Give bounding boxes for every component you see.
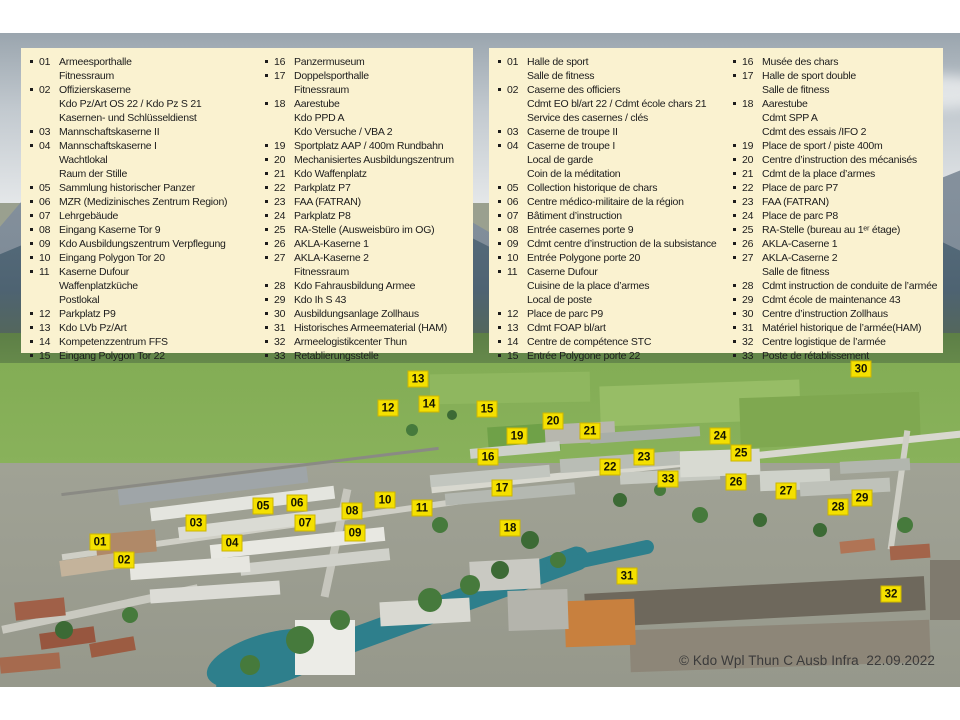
legend-item-text: AKLA-Kaserne 1 bbox=[294, 237, 369, 251]
legend-item: 14Centre de compétence STC bbox=[498, 335, 733, 349]
legend-item: 26AKLA-Caserne 1 bbox=[733, 237, 937, 251]
bullet-icon bbox=[498, 209, 507, 223]
legend-item-number: 27 bbox=[274, 251, 294, 279]
legend-item-text: Halle de sportSalle de fitness bbox=[527, 55, 594, 83]
bullet-icon bbox=[30, 321, 39, 335]
bullet-icon bbox=[498, 237, 507, 251]
map-marker-22[interactable]: 22 bbox=[600, 459, 621, 476]
map-marker-08[interactable]: 08 bbox=[342, 503, 363, 520]
map-marker-07[interactable]: 07 bbox=[295, 515, 316, 532]
legend-item-text: Centre logistique de l’armée bbox=[762, 335, 886, 349]
bullet-icon bbox=[265, 139, 274, 153]
tree-icon bbox=[447, 410, 457, 420]
legend-item: 17DoppelsporthalleFitnessraum bbox=[265, 69, 454, 97]
legend-item-number: 33 bbox=[274, 349, 294, 363]
bullet-icon bbox=[30, 223, 39, 237]
bullet-icon bbox=[265, 167, 274, 181]
map-marker-27[interactable]: 27 bbox=[776, 483, 797, 500]
legend-item-number: 09 bbox=[39, 237, 59, 251]
legend-item: 09Cdmt centre d’instruction de la subsis… bbox=[498, 237, 733, 251]
map-marker-29[interactable]: 29 bbox=[852, 490, 873, 507]
bullet-icon bbox=[733, 209, 742, 223]
legend-item-number: 24 bbox=[274, 209, 294, 223]
legend-item-text: Kaserne DufourWaffenplatzküchePostlokal bbox=[59, 265, 138, 307]
bullet-icon bbox=[733, 335, 742, 349]
map-marker-19[interactable]: 19 bbox=[507, 428, 528, 445]
bullet-icon bbox=[733, 181, 742, 195]
legend-item-number: 29 bbox=[274, 293, 294, 307]
legend-item: 12Parkplatz P9 bbox=[30, 307, 265, 321]
legend-item-text: RA-Stelle (bureau au 1ᵉʳ étage) bbox=[762, 223, 900, 237]
legend-item-number: 31 bbox=[742, 321, 762, 335]
legend-item: 27AKLA-Caserne 2Salle de fitness bbox=[733, 251, 937, 279]
legend-item: 29Cdmt école de maintenance 43 bbox=[733, 293, 937, 307]
tree-icon bbox=[330, 610, 350, 630]
tree-icon bbox=[406, 424, 418, 436]
legend-item-text: AarestubeKdo PPD AKdo Versuche / VBA 2 bbox=[294, 97, 392, 139]
legend-item: 22Parkplatz P7 bbox=[265, 181, 454, 195]
bullet-icon bbox=[30, 265, 39, 307]
legend-item: 06MZR (Medizinisches Zentrum Region) bbox=[30, 195, 265, 209]
legend-item: 02Caserne des officiersCdmt EO bl/art 22… bbox=[498, 83, 733, 125]
legend-item: 24Place de parc P8 bbox=[733, 209, 937, 223]
bullet-icon bbox=[498, 223, 507, 237]
legend-item-number: 22 bbox=[274, 181, 294, 195]
legend-item-number: 19 bbox=[742, 139, 762, 153]
legend-item: 32Armeelogistikcenter Thun bbox=[265, 335, 454, 349]
map-marker-06[interactable]: 06 bbox=[287, 495, 308, 512]
map-marker-11[interactable]: 11 bbox=[412, 500, 433, 517]
bullet-icon bbox=[30, 307, 39, 321]
tree-icon bbox=[432, 517, 448, 533]
legend-item-text: AKLA-Caserne 2Salle de fitness bbox=[762, 251, 837, 279]
map-marker-26[interactable]: 26 bbox=[726, 474, 747, 491]
legend-item-number: 03 bbox=[507, 125, 527, 139]
legend-item-number: 26 bbox=[742, 237, 762, 251]
legend-item-text: Place de sport / piste 400m bbox=[762, 139, 883, 153]
bullet-icon bbox=[498, 125, 507, 139]
copyright-text: © Kdo Wpl Thun C Ausb Infra 22.09.2022 bbox=[679, 653, 935, 668]
legend-item-text: Musée des chars bbox=[762, 55, 838, 69]
bullet-icon bbox=[265, 335, 274, 349]
legend-item-text: ArmeesporthalleFitnessraum bbox=[59, 55, 132, 83]
bullet-icon bbox=[265, 181, 274, 195]
legend-item: 31Matériel historique de l’armée(HAM) bbox=[733, 321, 937, 335]
bullet-icon bbox=[265, 97, 274, 139]
legend-item-number: 01 bbox=[507, 55, 527, 83]
tree-icon bbox=[692, 507, 708, 523]
bullet-icon bbox=[498, 195, 507, 209]
legend-item: 30Ausbildungsanlage Zollhaus bbox=[265, 307, 454, 321]
legend-item-number: 13 bbox=[39, 321, 59, 335]
building bbox=[890, 544, 931, 561]
legend-item-text: OffizierskaserneKdo Pz/Art OS 22 / Kdo P… bbox=[59, 83, 202, 125]
legend-item-number: 20 bbox=[274, 153, 294, 167]
bullet-icon bbox=[265, 307, 274, 321]
legend-item: 11Caserne DufourCuisine de la place d’ar… bbox=[498, 265, 733, 307]
bullet-icon bbox=[498, 349, 507, 363]
legend-item: 20Mechanisiertes Ausbildungszentrum bbox=[265, 153, 454, 167]
bullet-icon bbox=[733, 69, 742, 97]
legend-item-text: Kdo Waffenplatz bbox=[294, 167, 367, 181]
tree-icon bbox=[286, 626, 314, 654]
bullet-icon bbox=[733, 223, 742, 237]
legend-item: 21Kdo Waffenplatz bbox=[265, 167, 454, 181]
site-plan-screenshot: 01ArmeesporthalleFitnessraum02Offiziersk… bbox=[0, 0, 960, 720]
bullet-icon bbox=[733, 293, 742, 307]
map-marker-05[interactable]: 05 bbox=[253, 498, 274, 515]
tree-icon bbox=[753, 513, 767, 527]
bullet-icon bbox=[733, 237, 742, 251]
legend-item-text: Parkplatz P9 bbox=[59, 307, 116, 321]
tree-icon bbox=[240, 655, 260, 675]
tree-icon bbox=[521, 531, 539, 549]
legend-item-number: 17 bbox=[742, 69, 762, 97]
legend-item-number: 10 bbox=[39, 251, 59, 265]
legend-item-text: Bâtiment d’instruction bbox=[527, 209, 622, 223]
legend-item-text: Kompetenzzentrum FFS bbox=[59, 335, 168, 349]
legend-item-number: 10 bbox=[507, 251, 527, 265]
building bbox=[507, 589, 568, 631]
bullet-icon bbox=[733, 97, 742, 139]
map-marker-15[interactable]: 15 bbox=[477, 401, 498, 418]
tree-icon bbox=[418, 588, 442, 612]
building bbox=[564, 599, 636, 647]
legend-item: 01ArmeesporthalleFitnessraum bbox=[30, 55, 265, 83]
legend-item-number: 12 bbox=[507, 307, 527, 321]
legend-item-text: Caserne de troupe II bbox=[527, 125, 618, 139]
bullet-icon bbox=[733, 167, 742, 181]
map-marker-30[interactable]: 30 bbox=[851, 361, 872, 378]
legend-item: 31Historisches Armeematerial (HAM) bbox=[265, 321, 454, 335]
bullet-icon bbox=[265, 195, 274, 209]
legend-item-text: Sportplatz AAP / 400m Rundbahn bbox=[294, 139, 443, 153]
legend-item-number: 21 bbox=[742, 167, 762, 181]
legend-item: 03Caserne de troupe II bbox=[498, 125, 733, 139]
legend-item: 05Sammlung historischer Panzer bbox=[30, 181, 265, 195]
legend-item-text: RA-Stelle (Ausweisbüro im OG) bbox=[294, 223, 434, 237]
legend-item-text: MZR (Medizinisches Zentrum Region) bbox=[59, 195, 227, 209]
bullet-icon bbox=[265, 237, 274, 251]
legend-item: 18AarestubeKdo PPD AKdo Versuche / VBA 2 bbox=[265, 97, 454, 139]
legend-item: 11Kaserne DufourWaffenplatzküchePostloka… bbox=[30, 265, 265, 307]
legend-item-number: 20 bbox=[742, 153, 762, 167]
legend-item: 13Cdmt FOAP bl/art bbox=[498, 321, 733, 335]
map-marker-28[interactable]: 28 bbox=[828, 499, 849, 516]
map-marker-10[interactable]: 10 bbox=[375, 492, 396, 509]
legend-item: 23FAA (FATRAN) bbox=[265, 195, 454, 209]
legend-item-text: Parkplatz P7 bbox=[294, 181, 351, 195]
legend-item: 10Eingang Polygon Tor 20 bbox=[30, 251, 265, 265]
legend-item: 21Cdmt de la place d’armes bbox=[733, 167, 937, 181]
legend-item-number: 02 bbox=[39, 83, 59, 125]
legend-item-text: Sammlung historischer Panzer bbox=[59, 181, 195, 195]
legend-item: 28Cdmt instruction de conduite de l’armé… bbox=[733, 279, 937, 293]
legend-item-number: 32 bbox=[742, 335, 762, 349]
legend-item-number: 26 bbox=[274, 237, 294, 251]
map-marker-23[interactable]: 23 bbox=[634, 449, 655, 466]
bullet-icon bbox=[265, 55, 274, 69]
legend-french: 01Halle de sportSalle de fitness02Casern… bbox=[489, 48, 943, 353]
bullet-icon bbox=[30, 125, 39, 139]
legend-item: 33Poste de rétablissement bbox=[733, 349, 937, 363]
legend-item-text: Eingang Kaserne Tor 9 bbox=[59, 223, 160, 237]
legend-item-text: Cdmt de la place d’armes bbox=[762, 167, 875, 181]
legend-item: 05Collection historique de chars bbox=[498, 181, 733, 195]
legend-item: 19Sportplatz AAP / 400m Rundbahn bbox=[265, 139, 454, 153]
legend-item: 08Entrée casernes porte 9 bbox=[498, 223, 733, 237]
tree-icon bbox=[897, 517, 913, 533]
legend-item-text: Place de parc P9 bbox=[527, 307, 603, 321]
legend-item-text: FAA (FATRAN) bbox=[762, 195, 829, 209]
map-marker-17[interactable]: 17 bbox=[492, 480, 513, 497]
legend-item-number: 08 bbox=[507, 223, 527, 237]
bullet-icon bbox=[265, 293, 274, 307]
legend-item-text: FAA (FATRAN) bbox=[294, 195, 361, 209]
legend-item: 22Place de parc P7 bbox=[733, 181, 937, 195]
bullet-icon bbox=[733, 153, 742, 167]
legend-item-text: Historisches Armeematerial (HAM) bbox=[294, 321, 447, 335]
legend-item: 19Place de sport / piste 400m bbox=[733, 139, 937, 153]
legend-item-number: 14 bbox=[507, 335, 527, 349]
legend-item-number: 24 bbox=[742, 209, 762, 223]
legend-item-number: 15 bbox=[507, 349, 527, 363]
map-marker-04[interactable]: 04 bbox=[222, 535, 243, 552]
bullet-icon bbox=[498, 83, 507, 125]
legend-item: 14Kompetenzzentrum FFS bbox=[30, 335, 265, 349]
tree-icon bbox=[491, 561, 509, 579]
bullet-icon bbox=[498, 265, 507, 307]
legend-item-text: Cdmt instruction de conduite de l’armée bbox=[762, 279, 937, 293]
legend-item: 24Parkplatz P8 bbox=[265, 209, 454, 223]
map-marker-33[interactable]: 33 bbox=[658, 471, 679, 488]
legend-item: 15Eingang Polygon Tor 22 bbox=[30, 349, 265, 363]
tree-icon bbox=[813, 523, 827, 537]
map-marker-01[interactable]: 01 bbox=[90, 534, 111, 551]
legend-item-number: 28 bbox=[274, 279, 294, 293]
map-marker-21[interactable]: 21 bbox=[580, 423, 601, 440]
legend-item-text: Eingang Polygon Tor 22 bbox=[59, 349, 165, 363]
legend-item-text: Centre médico-militaire de la région bbox=[527, 195, 684, 209]
legend-item: 16Musée des chars bbox=[733, 55, 937, 69]
legend-item-number: 33 bbox=[742, 349, 762, 363]
map-marker-13[interactable]: 13 bbox=[408, 371, 429, 388]
legend-item: 25RA-Stelle (Ausweisbüro im OG) bbox=[265, 223, 454, 237]
legend-item-number: 23 bbox=[274, 195, 294, 209]
legend-item-text: Ausbildungsanlage Zollhaus bbox=[294, 307, 419, 321]
legend-item-text: Cdmt centre d’instruction de la subsista… bbox=[527, 237, 716, 251]
bullet-icon bbox=[733, 195, 742, 209]
legend-item: 32Centre logistique de l’armée bbox=[733, 335, 937, 349]
legend-item: 20Centre d’instruction des mécanisés bbox=[733, 153, 937, 167]
legend-item-text: Entrée Polygone porte 22 bbox=[527, 349, 640, 363]
legend-item: 07Bâtiment d’instruction bbox=[498, 209, 733, 223]
legend-item-number: 15 bbox=[39, 349, 59, 363]
tree-icon bbox=[613, 493, 627, 507]
legend-item: 10Entrée Polygone porte 20 bbox=[498, 251, 733, 265]
legend-item-number: 31 bbox=[274, 321, 294, 335]
legend-item-text: Mannschaftskaserne II bbox=[59, 125, 159, 139]
legend-item-number: 23 bbox=[742, 195, 762, 209]
legend-item: 04Mannschaftskaserne IWachtlokalRaum der… bbox=[30, 139, 265, 181]
legend-item-text: Centre d’instruction Zollhaus bbox=[762, 307, 888, 321]
legend-item-text: Cdmt école de maintenance 43 bbox=[762, 293, 900, 307]
bullet-icon bbox=[498, 251, 507, 265]
legend-item-number: 06 bbox=[39, 195, 59, 209]
legend-item: 16Panzermuseum bbox=[265, 55, 454, 69]
legend-item: 18AarestubeCdmt SPP ACdmt des essais /IF… bbox=[733, 97, 937, 139]
legend-item-text: Kdo Ausbildungszentrum Verpflegung bbox=[59, 237, 226, 251]
legend-item-text: Lehrgebäude bbox=[59, 209, 118, 223]
legend-item: 06Centre médico-militaire de la région bbox=[498, 195, 733, 209]
legend-item-text: Centre d’instruction des mécanisés bbox=[762, 153, 917, 167]
legend-item-text: Parkplatz P8 bbox=[294, 209, 351, 223]
legend-item-number: 18 bbox=[274, 97, 294, 139]
legend-item: 13Kdo LVb Pz/Art bbox=[30, 321, 265, 335]
legend-item-number: 18 bbox=[742, 97, 762, 139]
legend-french-column-1: 01Halle de sportSalle de fitness02Casern… bbox=[498, 55, 733, 353]
legend-item-text: AKLA-Caserne 1 bbox=[762, 237, 837, 251]
legend-item-text: Place de parc P7 bbox=[762, 181, 838, 195]
legend-item-number: 30 bbox=[274, 307, 294, 321]
legend-item-number: 32 bbox=[274, 335, 294, 349]
legend-item-number: 27 bbox=[742, 251, 762, 279]
legend-item-text: AarestubeCdmt SPP ACdmt des essais /IFO … bbox=[762, 97, 866, 139]
map-marker-09[interactable]: 09 bbox=[345, 525, 366, 542]
map-marker-03[interactable]: 03 bbox=[186, 515, 207, 532]
map-marker-16[interactable]: 16 bbox=[478, 449, 499, 466]
map-marker-18[interactable]: 18 bbox=[500, 520, 521, 537]
legend-item-number: 11 bbox=[507, 265, 527, 307]
bullet-icon bbox=[30, 181, 39, 195]
bullet-icon bbox=[30, 335, 39, 349]
legend-item-number: 02 bbox=[507, 83, 527, 125]
legend-item-number: 06 bbox=[507, 195, 527, 209]
legend-item-text: Entrée Polygone porte 20 bbox=[527, 251, 640, 265]
legend-german: 01ArmeesporthalleFitnessraum02Offiziersk… bbox=[21, 48, 473, 353]
legend-item-text: Centre de compétence STC bbox=[527, 335, 651, 349]
bullet-icon bbox=[733, 139, 742, 153]
legend-german-column-1: 01ArmeesporthalleFitnessraum02Offiziersk… bbox=[30, 55, 265, 353]
legend-item-text: Eingang Polygon Tor 20 bbox=[59, 251, 165, 265]
legend-item-number: 25 bbox=[742, 223, 762, 237]
legend-item-number: 07 bbox=[39, 209, 59, 223]
legend-item-number: 19 bbox=[274, 139, 294, 153]
map-marker-24[interactable]: 24 bbox=[710, 428, 731, 445]
legend-item-text: Mechanisiertes Ausbildungszentrum bbox=[294, 153, 454, 167]
legend-item: 04Caserne de troupe ILocal de gardeCoin … bbox=[498, 139, 733, 181]
legend-german-column-2: 16Panzermuseum17DoppelsporthalleFitnessr… bbox=[265, 55, 454, 353]
legend-item: 08Eingang Kaserne Tor 9 bbox=[30, 223, 265, 237]
bullet-icon bbox=[265, 153, 274, 167]
map-marker-12[interactable]: 12 bbox=[378, 400, 399, 417]
legend-item-text: Poste de rétablissement bbox=[762, 349, 869, 363]
legend-item-number: 01 bbox=[39, 55, 59, 83]
legend-item-number: 28 bbox=[742, 279, 762, 293]
legend-item-text: Halle de sport doubleSalle de fitness bbox=[762, 69, 856, 97]
legend-item-number: 16 bbox=[742, 55, 762, 69]
legend-item-text: Caserne des officiersCdmt EO bl/art 22 /… bbox=[527, 83, 706, 125]
legend-item: 03Mannschaftskaserne II bbox=[30, 125, 265, 139]
bullet-icon bbox=[30, 195, 39, 209]
bullet-icon bbox=[265, 223, 274, 237]
legend-item-text: Kdo Ih S 43 bbox=[294, 293, 346, 307]
bullet-icon bbox=[498, 139, 507, 181]
legend-item-number: 05 bbox=[39, 181, 59, 195]
bullet-icon bbox=[733, 55, 742, 69]
bullet-icon bbox=[733, 251, 742, 279]
legend-item-number: 17 bbox=[274, 69, 294, 97]
legend-item: 15Entrée Polygone porte 22 bbox=[498, 349, 733, 363]
legend-item: 12Place de parc P9 bbox=[498, 307, 733, 321]
legend-item-number: 12 bbox=[39, 307, 59, 321]
legend-item-number: 29 bbox=[742, 293, 762, 307]
legend-item-number: 13 bbox=[507, 321, 527, 335]
legend-item-text: DoppelsporthalleFitnessraum bbox=[294, 69, 369, 97]
legend-item-text: Caserne de troupe ILocal de gardeCoin de… bbox=[527, 139, 620, 181]
legend-item-text: Kdo LVb Pz/Art bbox=[59, 321, 127, 335]
legend-item-text: Cdmt FOAP bl/art bbox=[527, 321, 606, 335]
legend-item-text: Place de parc P8 bbox=[762, 209, 838, 223]
field-patch bbox=[430, 372, 590, 405]
bullet-icon bbox=[30, 237, 39, 251]
legend-item-number: 14 bbox=[39, 335, 59, 349]
map-marker-25[interactable]: 25 bbox=[731, 445, 752, 462]
legend-item-text: Armeelogistikcenter Thun bbox=[294, 335, 407, 349]
bullet-icon bbox=[30, 251, 39, 265]
legend-item-text: Panzermuseum bbox=[294, 55, 365, 69]
map-marker-31[interactable]: 31 bbox=[617, 568, 638, 585]
legend-item: 25RA-Stelle (bureau au 1ᵉʳ étage) bbox=[733, 223, 937, 237]
bullet-icon bbox=[733, 349, 742, 363]
tree-icon bbox=[550, 552, 566, 568]
legend-item-number: 09 bbox=[507, 237, 527, 251]
bullet-icon bbox=[498, 55, 507, 83]
bullet-icon bbox=[265, 321, 274, 335]
legend-item: 23FAA (FATRAN) bbox=[733, 195, 937, 209]
legend-item: 17Halle de sport doubleSalle de fitness bbox=[733, 69, 937, 97]
tree-icon bbox=[122, 607, 138, 623]
map-marker-20[interactable]: 20 bbox=[543, 413, 564, 430]
legend-item: 07Lehrgebäude bbox=[30, 209, 265, 223]
legend-item-number: 03 bbox=[39, 125, 59, 139]
legend-item-number: 21 bbox=[274, 167, 294, 181]
legend-item-text: Caserne DufourCuisine de la place d’arme… bbox=[527, 265, 649, 307]
map-marker-02[interactable]: 02 bbox=[114, 552, 135, 569]
tree-icon bbox=[55, 621, 73, 639]
map-marker-32[interactable]: 32 bbox=[881, 586, 902, 603]
bullet-icon bbox=[265, 69, 274, 97]
bullet-icon bbox=[265, 279, 274, 293]
bullet-icon bbox=[265, 209, 274, 223]
legend-item-number: 16 bbox=[274, 55, 294, 69]
map-marker-14[interactable]: 14 bbox=[419, 396, 440, 413]
bullet-icon bbox=[30, 349, 39, 363]
building bbox=[930, 560, 960, 620]
legend-item-number: 30 bbox=[742, 307, 762, 321]
bullet-icon bbox=[498, 307, 507, 321]
legend-item: 02OffizierskaserneKdo Pz/Art OS 22 / Kdo… bbox=[30, 83, 265, 125]
bullet-icon bbox=[498, 335, 507, 349]
legend-item: 28Kdo Fahrausbildung Armee bbox=[265, 279, 454, 293]
legend-item: 30Centre d’instruction Zollhaus bbox=[733, 307, 937, 321]
legend-item-text: Retablierungsstelle bbox=[294, 349, 379, 363]
legend-item-text: Kdo Fahrausbildung Armee bbox=[294, 279, 415, 293]
legend-item: 01Halle de sportSalle de fitness bbox=[498, 55, 733, 83]
legend-item-text: Mannschaftskaserne IWachtlokalRaum der S… bbox=[59, 139, 157, 181]
tree-icon bbox=[460, 575, 480, 595]
legend-item: 33Retablierungsstelle bbox=[265, 349, 454, 363]
